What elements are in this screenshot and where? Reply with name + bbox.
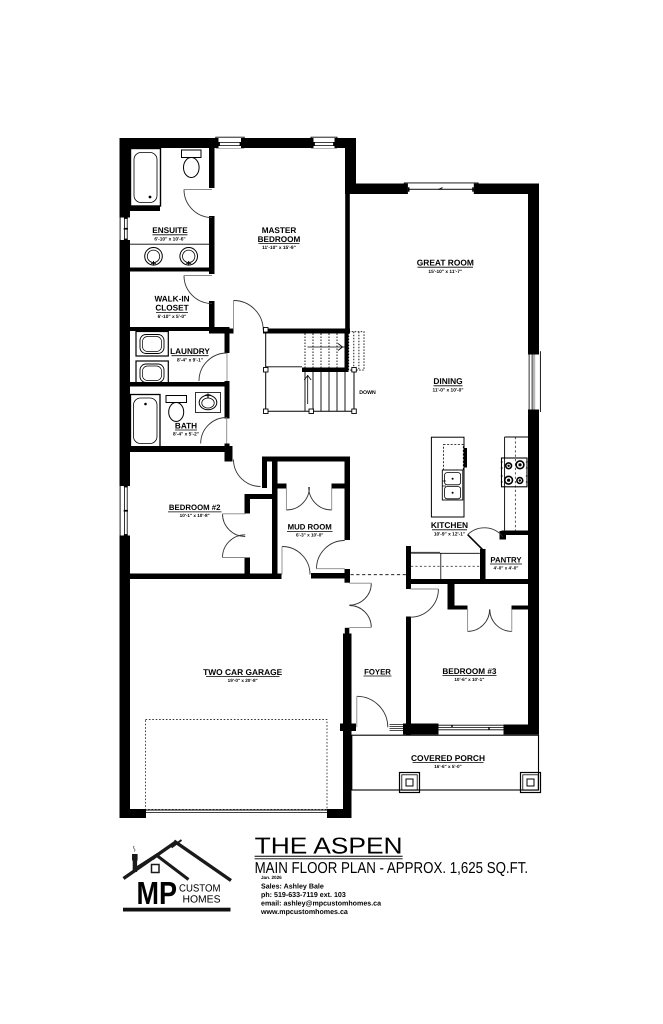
svg-text:ENSUITE: ENSUITE bbox=[152, 226, 188, 235]
svg-text:www.mpcustomhomes.ca: www.mpcustomhomes.ca bbox=[260, 908, 348, 916]
svg-text:11'-0" x 10'-0": 11'-0" x 10'-0" bbox=[432, 387, 463, 393]
svg-text:DINING: DINING bbox=[433, 376, 462, 386]
svg-text:BEDROOM #3: BEDROOM #3 bbox=[442, 667, 497, 676]
svg-text:6'-10" x 10'-6": 6'-10" x 10'-6" bbox=[154, 237, 185, 243]
svg-text:THE ASPEN: THE ASPEN bbox=[255, 832, 403, 858]
svg-text:TWO CAR GARAGE: TWO CAR GARAGE bbox=[203, 667, 283, 677]
svg-text:10'-1" x 10'-8": 10'-1" x 10'-8" bbox=[180, 513, 210, 518]
svg-text:CUSTOM: CUSTOM bbox=[179, 883, 221, 894]
svg-text:MASTER: MASTER bbox=[262, 226, 297, 235]
svg-text:MAIN FLOOR PLAN - APPROX. 1,62: MAIN FLOOR PLAN - APPROX. 1,625 SQ.FT. bbox=[255, 860, 528, 877]
svg-text:CLOSET: CLOSET bbox=[155, 304, 188, 313]
svg-text:PANTRY: PANTRY bbox=[490, 555, 522, 564]
svg-text:19'-0" x 20'-8": 19'-0" x 20'-8" bbox=[228, 678, 258, 683]
svg-text:COVERED PORCH: COVERED PORCH bbox=[411, 753, 485, 763]
svg-text:GREAT ROOM: GREAT ROOM bbox=[417, 257, 474, 267]
svg-text:WALK-IN: WALK-IN bbox=[154, 295, 189, 304]
svg-text:ph: 519-633-7119 ext. 103: ph: 519-633-7119 ext. 103 bbox=[261, 891, 346, 899]
svg-text:10'-9" x 12'-1": 10'-9" x 12'-1" bbox=[434, 531, 465, 537]
svg-text:11'-10" x 15'-9": 11'-10" x 15'-9" bbox=[262, 245, 296, 251]
svg-text:6'-3" x 10'-0": 6'-3" x 10'-0" bbox=[296, 533, 323, 538]
svg-text:LAUNDRY: LAUNDRY bbox=[170, 347, 210, 356]
svg-text:BEDROOM #2: BEDROOM #2 bbox=[169, 503, 221, 512]
svg-text:8'-4" x 9'-1": 8'-4" x 9'-1" bbox=[177, 357, 203, 363]
svg-text:FOYER: FOYER bbox=[364, 667, 391, 676]
svg-text:BATH: BATH bbox=[175, 421, 197, 430]
svg-text:4'-0" x 4'-0": 4'-0" x 4'-0" bbox=[494, 565, 519, 570]
svg-text:email: ashley@mpcustomhomes.ca: email: ashley@mpcustomhomes.ca bbox=[261, 899, 381, 907]
svg-text:HOMES: HOMES bbox=[183, 894, 221, 905]
svg-text:10'-6" x 10'-1": 10'-6" x 10'-1" bbox=[454, 677, 484, 682]
svg-text:8'-4" x 5'-2": 8'-4" x 5'-2" bbox=[173, 432, 199, 438]
svg-text:Sales: Ashley Bale: Sales: Ashley Bale bbox=[261, 883, 324, 891]
svg-text:16'-6" x 5'-0": 16'-6" x 5'-0" bbox=[434, 764, 461, 769]
svg-text:BEDROOM: BEDROOM bbox=[258, 235, 301, 244]
svg-text:DOWN: DOWN bbox=[359, 390, 376, 396]
svg-text:MP: MP bbox=[137, 875, 178, 911]
svg-text:6'-10" x 5'-0": 6'-10" x 5'-0" bbox=[158, 314, 187, 320]
svg-text:15'-10" x 11'-7": 15'-10" x 11'-7" bbox=[428, 269, 462, 275]
svg-text:MUD ROOM: MUD ROOM bbox=[288, 523, 332, 532]
svg-text:Jan. 2026: Jan. 2026 bbox=[261, 875, 282, 880]
svg-text:KITCHEN: KITCHEN bbox=[431, 520, 468, 530]
